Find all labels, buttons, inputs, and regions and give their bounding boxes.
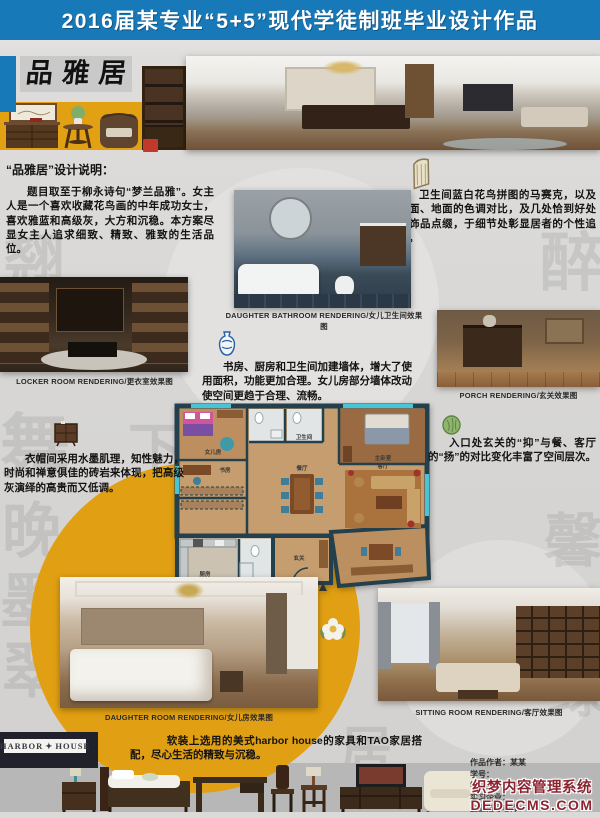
bathroom-note: 卫生间蓝白花鸟拼图的马赛克，以及墙面、地面的色调对比，及几处恰到好处的饰品点缀，… [398, 188, 596, 246]
curtain-silhouette [429, 602, 440, 670]
bed [100, 767, 190, 813]
door-silhouette [405, 64, 434, 119]
svg-text:女儿房: 女儿房 [205, 448, 222, 456]
dresser [4, 118, 60, 148]
design-note-body: 题目取至于柳永诗句“梦兰品雅”。女主人是一个喜欢收藏花鸟画的中年成功女士，喜欢雅… [6, 185, 214, 257]
rug-silhouette [443, 138, 567, 150]
svg-text:卫生间: 卫生间 [296, 433, 313, 441]
logo-text-right: HOUSE [55, 741, 90, 751]
vase-silhouette [483, 315, 496, 327]
plank-floor [437, 372, 600, 387]
poster-title: 品 雅 居 [24, 56, 128, 92]
cloakroom-note: 衣帽间采用水墨肌理，知性魅力，时尚和禅意俱佳的砖岩来体现，把高级灰演绎的高贵而又… [4, 452, 184, 495]
vanity-silhouette [360, 223, 406, 265]
round-mirror-silhouette [269, 197, 311, 239]
tile-floor [234, 294, 411, 308]
chandelier-silhouette [174, 582, 205, 599]
wardrobe-left-silhouette [0, 283, 49, 365]
sitting-caption: SITTING ROOM RENDERING/客厅效果图 [378, 707, 600, 718]
nightstand-with-lamp [62, 768, 96, 814]
locker-room-photo [0, 277, 188, 372]
header-interior-photo [186, 56, 600, 150]
svg-text:玄关: 玄关 [293, 554, 305, 562]
writing-desk [193, 777, 267, 813]
svg-text:书房: 书房 [219, 466, 231, 474]
dedecms-watermark: 织梦内容管理系统 DEDECMS.COM [462, 776, 600, 813]
locker-caption: LOCKER ROOM RENDERING/更衣室效果图 [2, 376, 187, 387]
bathroom-photo [234, 190, 411, 308]
svg-text:客厅: 客厅 [376, 462, 389, 470]
side-chair [271, 765, 294, 813]
chandelier-silhouette [323, 60, 364, 75]
console-cabinet-silhouette [463, 325, 522, 367]
svg-text:主卧室: 主卧室 [375, 454, 392, 462]
furnishing-note: 软装上选用的美式harbor house的家具和TAO家居搭配，尽心生活的精致与… [130, 734, 422, 763]
flower-icon [314, 610, 352, 648]
nightstand-silhouette [220, 671, 243, 692]
red-seal-stamp [143, 139, 158, 152]
tv-silhouette [463, 84, 513, 110]
wardrobe-right-silhouette [132, 283, 188, 365]
floor-plan: 女儿房 卫生间 主卧室 书房 餐厅 客厅 厨房 玄关 [173, 400, 431, 592]
calligraphy-watermark: 馨 [544, 512, 600, 570]
svg-text:餐厅: 餐厅 [295, 464, 308, 472]
porch-photo [437, 310, 600, 387]
design-note: “品雅居”设计说明： 题目取至于柳永诗句“梦兰品雅”。女主人是一个喜欢收藏花鸟画… [6, 162, 214, 257]
sofa-silhouette [436, 663, 520, 692]
design-note-heading: “品雅居”设计说明： [6, 162, 214, 179]
headboard-wall [81, 608, 205, 645]
wicker-chair [100, 114, 138, 148]
island-bench-silhouette [68, 342, 117, 357]
bed-silhouette [70, 649, 212, 701]
sofa-silhouette [521, 107, 587, 128]
sitting-room-photo [378, 588, 600, 701]
top-banner: 2016届某专业“5+5”现代学徒制班毕业设计作品 [0, 0, 600, 40]
watermark-line1: 织梦内容管理系统 [462, 776, 600, 797]
coffee-table-silhouette [458, 690, 498, 699]
harbor-house-logo: HARBOR ✦ HOUSE [4, 739, 86, 753]
bottom-edge-line [0, 812, 600, 818]
porch-caption: PORCH RENDERING/玄关效果图 [437, 390, 600, 401]
curtain-silhouette [266, 593, 287, 674]
wall-art-silhouette [545, 318, 584, 344]
window-silhouette [387, 604, 431, 663]
blue-accent-square [0, 56, 16, 112]
poster: 翘 醉 舞 下 晚 墨 翠 馨 蔓 绿 居 2016届某专业“5+5”现代学徒制… [0, 0, 600, 818]
lamp-table [301, 767, 327, 813]
diamond-icon: ✦ [45, 741, 53, 752]
side-table-with-plant [63, 106, 93, 148]
poster-title-box: 品 雅 居 [20, 56, 132, 92]
bathroom-caption: DAUGHTER BATHROOM RENDERING/女儿卫生间效果图 [224, 310, 424, 332]
daughter-caption: DAUGHTER ROOM RENDERING/女儿房效果图 [60, 712, 318, 723]
watermark-line2: DEDECMS.COM [462, 797, 600, 813]
porcelain-vase-icon [216, 329, 238, 357]
porch-note: 入口处玄关的“抑”与餐、客厅的“扬”的对比变化丰富了空间层次。 [428, 436, 596, 465]
tv-cabinet [340, 764, 422, 813]
daughter-room-photo [60, 577, 318, 708]
dining-set-silhouette [302, 105, 410, 129]
back-cabinet-silhouette [56, 288, 124, 332]
cabinet-icon [52, 420, 80, 448]
curtain-silhouette [378, 602, 391, 670]
jade-ornament-icon [441, 414, 462, 435]
credit-author: 作品作者：某某 [470, 757, 598, 769]
bookshelf-silhouette [516, 606, 600, 678]
logo-text-left: HARBOR [0, 741, 43, 751]
walls-note: 书房、厨房和卫生间加建墙体，增大了使用面积，功能更加合理。女儿房部分墙体改动使空… [202, 360, 412, 403]
tall-bookcase [142, 66, 186, 150]
harbor-house-logo-strip: HARBOR ✦ HOUSE [0, 732, 98, 768]
banner-title: 2016届某专业“5+5”现代学徒制班毕业设计作品 [62, 5, 539, 35]
